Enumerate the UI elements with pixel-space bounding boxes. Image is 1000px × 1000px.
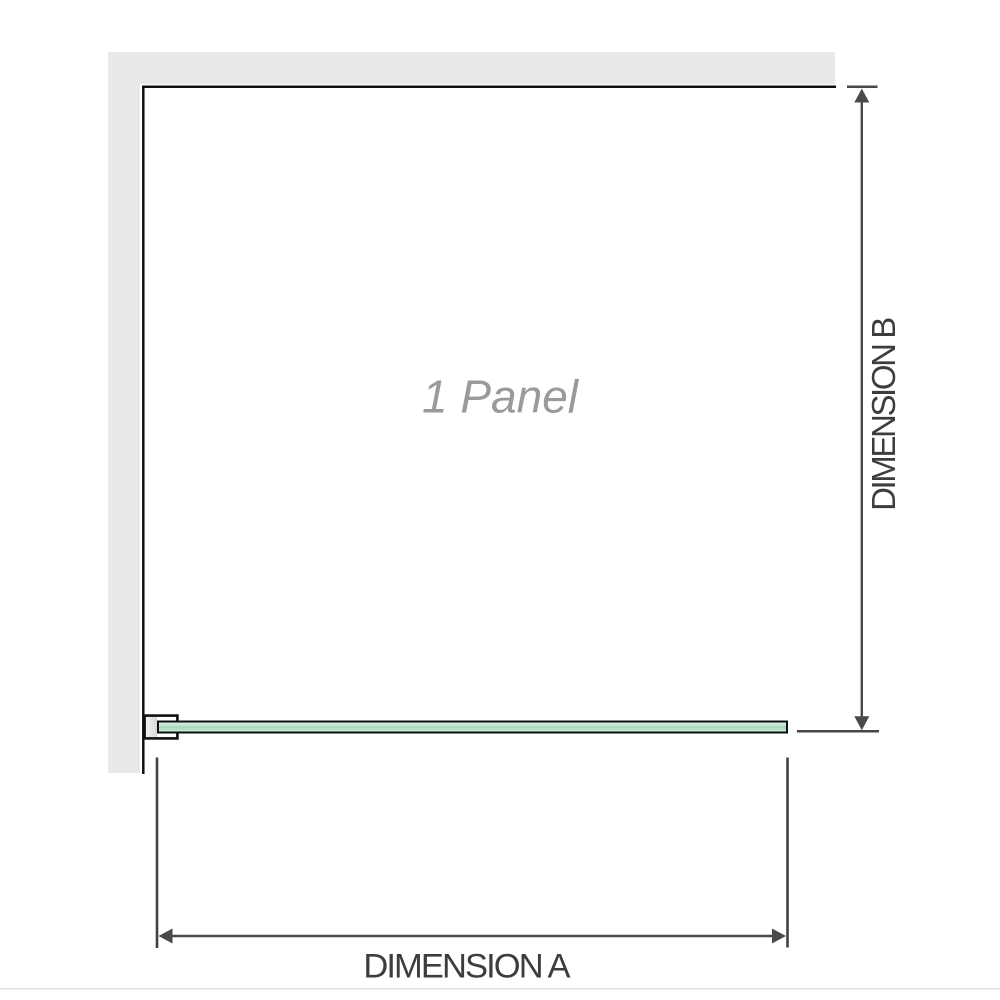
svg-text:DIMENSION A: DIMENSION A [363, 948, 570, 986]
svg-text:1 Panel: 1 Panel [422, 371, 580, 423]
svg-text:DIMENSION B: DIMENSION B [865, 318, 902, 511]
